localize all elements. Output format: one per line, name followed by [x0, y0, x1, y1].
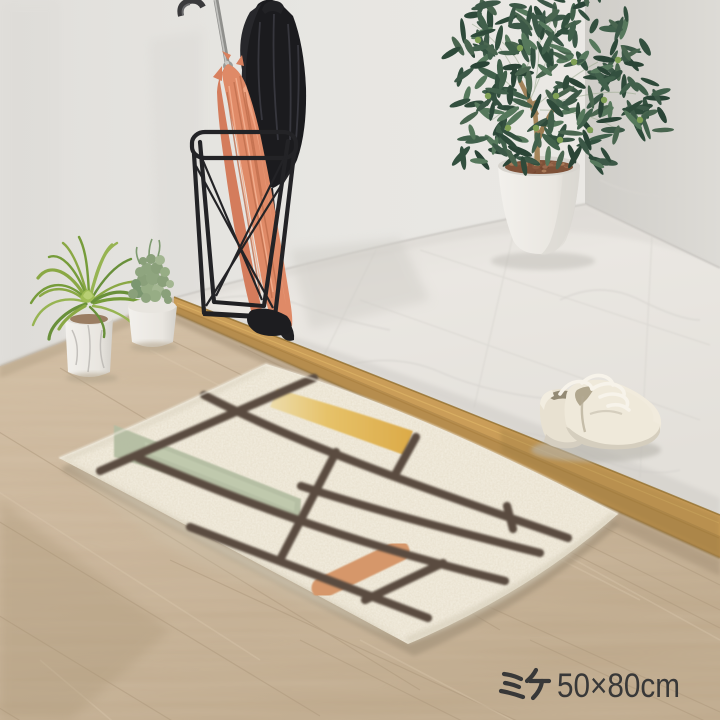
svg-text:50×80cm: 50×80cm — [557, 667, 680, 705]
